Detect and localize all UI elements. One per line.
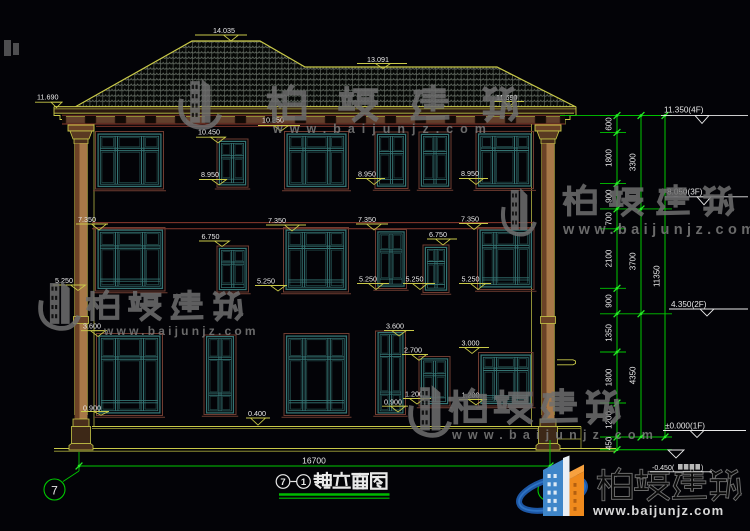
svg-text:5.250: 5.250: [257, 277, 275, 286]
svg-text:1350: 1350: [605, 323, 614, 341]
svg-text:6.750: 6.750: [202, 232, 220, 241]
svg-text:www.baijunjz.com: www.baijunjz.com: [451, 428, 659, 442]
svg-text:6.750: 6.750: [429, 230, 447, 239]
svg-text:5.250: 5.250: [406, 275, 424, 284]
svg-text:3300: 3300: [629, 153, 638, 171]
svg-text:0.400: 0.400: [248, 409, 266, 418]
svg-text:3700: 3700: [629, 252, 638, 270]
svg-text:±0.000(1F): ±0.000(1F): [665, 422, 705, 431]
svg-text:3.600: 3.600: [386, 322, 404, 331]
svg-text:7.350: 7.350: [461, 215, 479, 224]
svg-text:3.600: 3.600: [83, 322, 101, 331]
svg-text:8.950: 8.950: [201, 170, 219, 179]
svg-text:2.700: 2.700: [404, 346, 422, 355]
svg-text:8.950: 8.950: [358, 169, 376, 178]
svg-text:www.baijunjz.com: www.baijunjz.com: [592, 503, 724, 518]
svg-text:13.091: 13.091: [367, 55, 389, 64]
svg-text:11.690: 11.690: [37, 93, 58, 102]
svg-text:www.baijunjz.com: www.baijunjz.com: [103, 324, 259, 338]
svg-text:4350: 4350: [629, 366, 638, 384]
svg-text:3.000: 3.000: [462, 339, 480, 348]
svg-text:4.350(2F): 4.350(2F): [671, 300, 707, 309]
svg-text:0.900: 0.900: [83, 403, 101, 412]
svg-text:2100: 2100: [605, 249, 614, 267]
svg-text:16700: 16700: [302, 456, 326, 466]
svg-text:11350: 11350: [653, 265, 662, 287]
svg-text:7.350: 7.350: [358, 215, 376, 224]
svg-text:5.250: 5.250: [462, 275, 480, 284]
svg-text:5.250: 5.250: [359, 275, 377, 284]
svg-text:1800: 1800: [605, 368, 614, 386]
svg-text:7: 7: [280, 477, 285, 488]
svg-text:): ): [701, 465, 703, 472]
svg-text:www.baijunjz.com: www.baijunjz.com: [562, 222, 750, 238]
svg-text:1: 1: [301, 477, 307, 488]
svg-text:7.350: 7.350: [268, 216, 286, 225]
svg-text:11.350(4F): 11.350(4F): [664, 106, 704, 115]
svg-text:600: 600: [605, 117, 614, 131]
svg-text:www.baijunjz.com: www.baijunjz.com: [272, 122, 493, 136]
svg-text:900: 900: [605, 294, 614, 308]
svg-text:-0.450(: -0.450(: [652, 465, 675, 472]
svg-text:14.035: 14.035: [213, 26, 235, 35]
svg-text:1800: 1800: [605, 149, 614, 167]
svg-text:0.900: 0.900: [384, 398, 402, 407]
svg-text:7: 7: [51, 484, 58, 498]
svg-text:8.950: 8.950: [461, 169, 479, 178]
svg-text:7.350: 7.350: [78, 215, 96, 224]
